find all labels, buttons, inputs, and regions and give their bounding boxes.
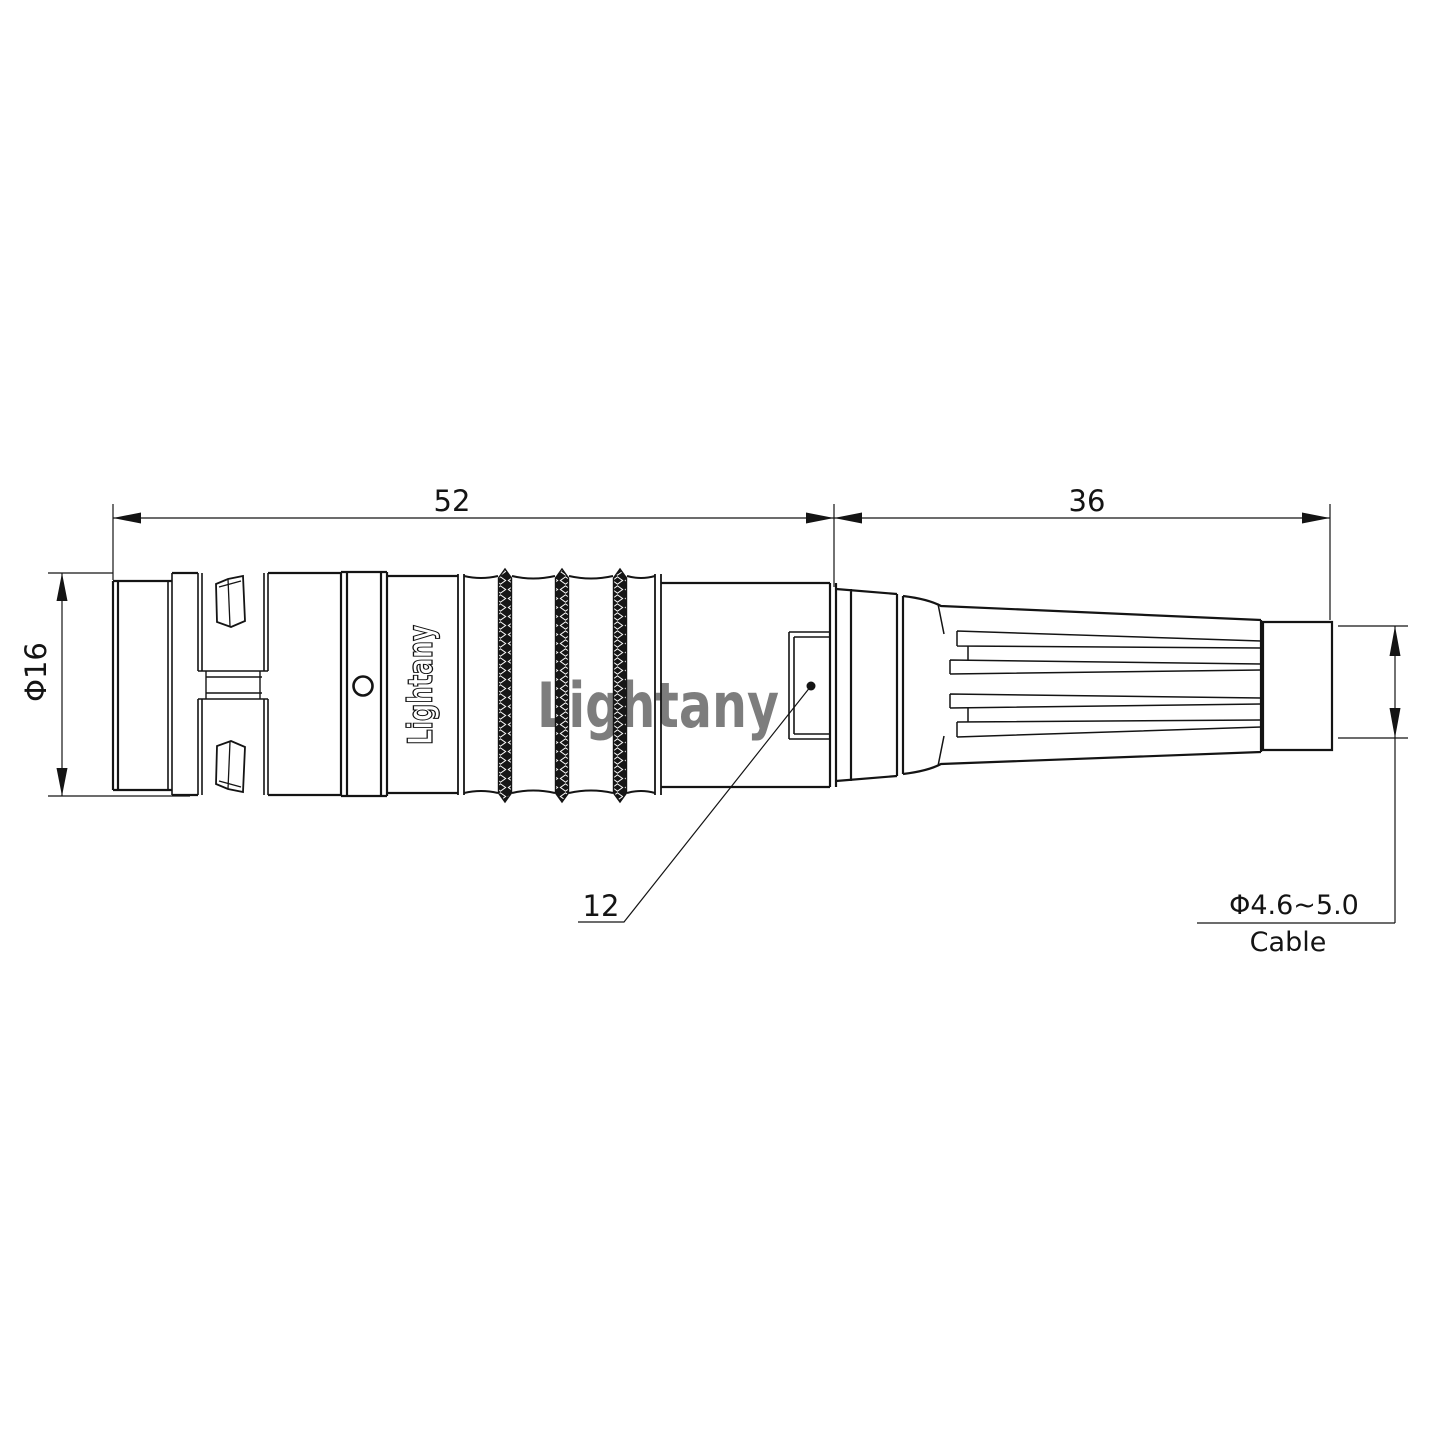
cable-boot bbox=[1263, 622, 1332, 750]
strain-relief bbox=[903, 596, 1261, 774]
technical-drawing-page: Lightany 52 36 Φ16 bbox=[0, 0, 1440, 1440]
dimension-label-dia16: Φ16 bbox=[19, 642, 53, 702]
cone-flutes bbox=[950, 631, 1261, 737]
coupling-ring bbox=[341, 572, 387, 796]
cone-collar bbox=[938, 604, 944, 766]
cable-diameter-label: Φ4.6~5.0 bbox=[1229, 890, 1359, 921]
latch-slot-window bbox=[198, 671, 268, 699]
nose-groove-lines bbox=[168, 573, 172, 795]
upper-key bbox=[216, 576, 245, 627]
knurl-band bbox=[614, 569, 627, 802]
knurl-band bbox=[556, 569, 569, 802]
dimension-label-12: 12 bbox=[583, 889, 620, 923]
dimension-label-36: 36 bbox=[1069, 484, 1106, 518]
dimension-label-52: 52 bbox=[434, 484, 471, 518]
lower-key bbox=[216, 741, 245, 792]
nose-front-face bbox=[113, 581, 172, 790]
connector-technical-drawing: Lightany 52 36 Φ16 bbox=[0, 0, 1440, 1440]
cable-label: Cable bbox=[1250, 927, 1327, 958]
watermark-text: Lightany bbox=[537, 669, 779, 742]
connector-nose bbox=[113, 573, 341, 795]
knurl-band bbox=[499, 569, 512, 802]
shell-marking-text: Lightany bbox=[401, 625, 441, 745]
length-dimensions bbox=[113, 504, 1330, 620]
ring-hole bbox=[354, 677, 373, 696]
rear-housing bbox=[836, 589, 903, 781]
